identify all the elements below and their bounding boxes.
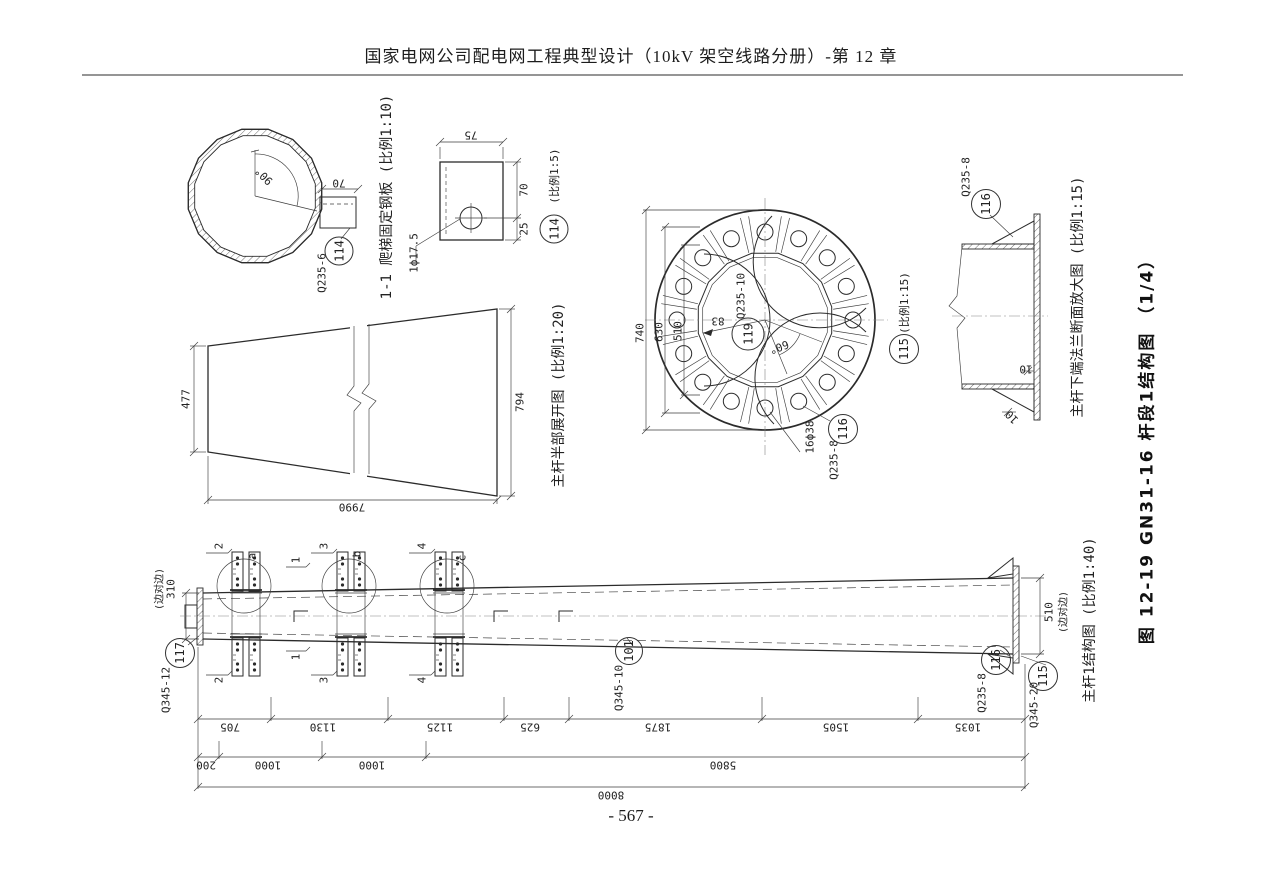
dim-1000-b: 1000 [359, 759, 386, 772]
dim-510-flange: 510 [672, 321, 685, 341]
dim-200: 200 [196, 759, 216, 772]
dim-1505: 1505 [823, 721, 850, 734]
view-title-flange-detail: 主杆下端法兰断面放大图 (比例1:15) [1067, 176, 1087, 417]
mat-q235-8-pole: Q235-8 [976, 673, 989, 713]
mat-q235-10: Q235-10 [735, 273, 748, 319]
mat-q345-10: Q345-10 [613, 665, 626, 711]
mat-q235-8-flange: Q235-8 [828, 440, 841, 480]
lbl-b: b [351, 551, 364, 558]
callout-101: 101 [615, 637, 643, 665]
dim-10-plate: 10 [1019, 363, 1032, 376]
sec-1-bot: 1 [290, 654, 303, 661]
mat-q235-8-gusset: Q235-8 [960, 157, 973, 197]
dim-740: 740 [634, 323, 647, 343]
view-title-ladder-plate: 1-1 爬梯固定钢板 (比例1:10) [376, 95, 396, 300]
dim-1125: 1125 [427, 721, 454, 734]
callout-117: 117 [165, 638, 195, 668]
callout-114-detail: 114 [540, 215, 569, 244]
figure-title: 图 12-19 GN31-16 杆段1结构图 （1/4） [1133, 250, 1158, 644]
view-title-development: 主杆半部展开图 (比例1:20) [548, 302, 568, 487]
dim-794: 794 [514, 392, 527, 412]
sec-2-bot: 2 [213, 677, 226, 684]
dim-630: 630 [653, 322, 666, 342]
sec-3-bot: 3 [318, 677, 331, 684]
dim-83: 83 [711, 315, 724, 328]
callout-114-ladder: 114 [325, 237, 354, 266]
callout-115-pole: 115 [1028, 661, 1058, 691]
dim-7990: 7990 [339, 501, 366, 514]
dim-477: 477 [180, 389, 193, 409]
scale-1-5: (比例1:5) [546, 148, 562, 203]
dim-5800: 5800 [710, 759, 737, 772]
scale-1-15-flange: (比例1:15) [896, 272, 912, 334]
dim-8000: 8000 [598, 789, 625, 802]
dim-705: 705 [220, 721, 240, 734]
lbl-a: a [246, 553, 259, 560]
document-page: 国家电网公司配电网工程典型设计（10kV 架空线路分册）-第 12 章 - 56… [0, 0, 1262, 892]
callout-116-pole: 116 [981, 645, 1011, 675]
page-number: - 567 - [0, 806, 1262, 826]
dim-625: 625 [520, 721, 540, 734]
sec-3-top: 3 [318, 543, 331, 550]
dim-25: 25 [518, 222, 531, 235]
drawing-canvas [0, 0, 1262, 892]
dim-75: 75 [464, 129, 477, 142]
dim-310: 310 [165, 579, 178, 599]
dim-tab-70: 70 [332, 177, 345, 190]
dim-1875: 1875 [645, 721, 672, 734]
sec-4-bot: 4 [416, 677, 429, 684]
sec-4-top: 4 [416, 543, 429, 550]
note-side-left: (边对边) [151, 568, 166, 610]
dim-70: 70 [518, 183, 531, 196]
sec-1-top: 1 [290, 557, 303, 564]
hole-1d17-5: 1ϕ17.5 [408, 233, 421, 273]
callout-119: 119 [732, 318, 765, 351]
callout-116-gusset: 116 [971, 189, 1001, 219]
dim-1000-a: 1000 [255, 759, 282, 772]
page-header: 国家电网公司配电网工程典型设计（10kV 架空线路分册）-第 12 章 [0, 42, 1262, 67]
view-title-pole: 主杆1结构图 (比例1:40) [1079, 537, 1099, 702]
dim-1035: 1035 [955, 721, 982, 734]
sec-2-top: 2 [213, 543, 226, 550]
mat-q345-12: Q345-12 [160, 667, 173, 713]
lbl-c: c [456, 555, 469, 562]
callout-115-flange: 115 [889, 334, 919, 364]
holes-16d38: 16ϕ38 [804, 420, 817, 453]
dim-1130: 1130 [310, 721, 337, 734]
note-side-right: (边对边) [1055, 591, 1070, 633]
callout-116-flange: 116 [828, 414, 858, 444]
